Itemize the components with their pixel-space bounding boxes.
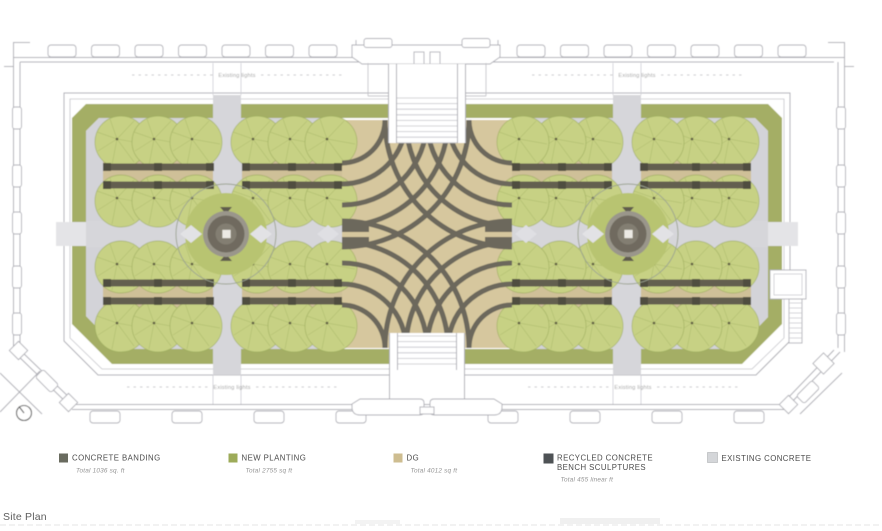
svg-text:Existing lights: Existing lights — [218, 73, 255, 79]
svg-text:Total 4012 sq ft: Total 4012 sq ft — [411, 468, 458, 475]
svg-text:NEW PLANTING: NEW PLANTING — [242, 454, 307, 463]
svg-text:Total 1036 sq. ft: Total 1036 sq. ft — [76, 468, 125, 475]
svg-text:Existing lights: Existing lights — [614, 385, 651, 391]
svg-text:BENCH SCULPTURES: BENCH SCULPTURES — [557, 463, 646, 472]
svg-text:Site Plan: Site Plan — [3, 511, 47, 523]
svg-text:EXISTING CONCRETE: EXISTING CONCRETE — [722, 454, 812, 463]
svg-text:Existing lights: Existing lights — [213, 385, 250, 391]
svg-text:DG: DG — [407, 454, 420, 463]
svg-text:CONCRETE BANDING: CONCRETE BANDING — [72, 454, 161, 463]
svg-text:Existing lights: Existing lights — [618, 73, 655, 79]
svg-text:Total 455 linear ft: Total 455 linear ft — [561, 477, 614, 484]
svg-text:Total 2755 sq ft: Total 2755 sq ft — [246, 468, 293, 475]
svg-text:RECYCLED CONCRETE: RECYCLED CONCRETE — [557, 454, 653, 463]
